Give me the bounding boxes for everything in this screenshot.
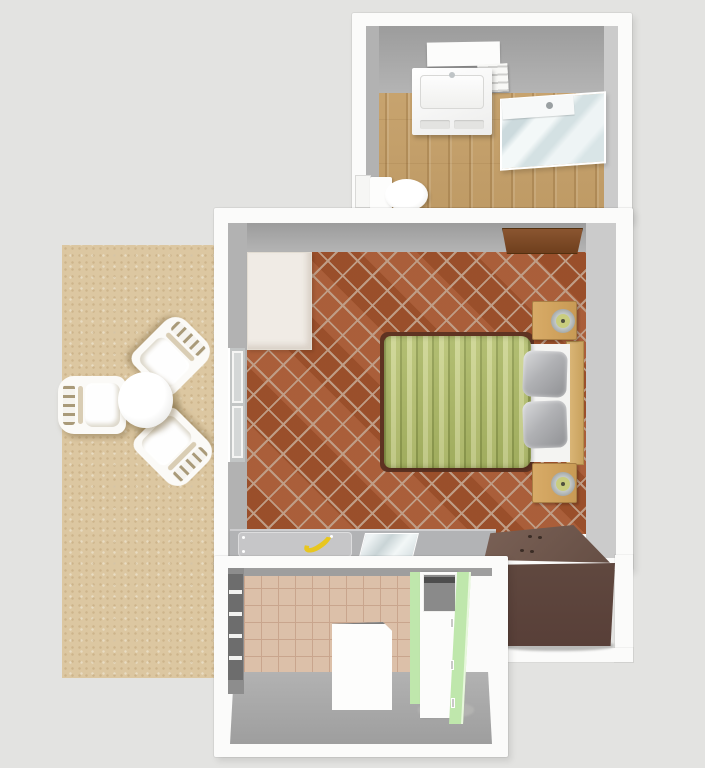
sink-tap — [449, 72, 455, 78]
kitchen-white-table[interactable] — [332, 622, 392, 710]
bed-duvet — [384, 336, 531, 468]
vanity-drawer-right — [454, 120, 484, 129]
window-pane-lower — [232, 406, 243, 458]
desk-knob — [242, 550, 245, 553]
cooktop-unit[interactable] — [423, 574, 456, 612]
floor-plan-scene — [0, 0, 705, 768]
nook-south-wall — [492, 648, 633, 662]
desk-knob — [242, 536, 245, 539]
bathroom-room — [352, 13, 632, 222]
cabinet-handle — [451, 698, 455, 708]
blind-slat — [229, 612, 242, 616]
kitchen-window-blinds[interactable] — [228, 574, 243, 680]
nook-east-wall — [615, 555, 633, 662]
shower-drain — [546, 102, 553, 109]
bedroom-rug[interactable] — [247, 252, 312, 350]
patio-room — [62, 245, 214, 678]
dresser-shadow — [500, 640, 614, 651]
cooktop-bar — [424, 577, 455, 583]
sink-basin — [420, 75, 484, 109]
bedroom-room — [214, 208, 633, 570]
bed-pillow-south — [522, 400, 568, 449]
lamp-bulb — [561, 319, 565, 323]
double-bed[interactable] — [380, 332, 586, 472]
bedroom-entry-door[interactable] — [502, 228, 583, 254]
vanity-drawer-left — [420, 120, 450, 129]
bathroom-mirror-shelf[interactable] — [427, 41, 500, 66]
window-pane-upper — [232, 351, 243, 403]
lamp-bulb — [561, 482, 565, 486]
bed-pillow-north — [522, 350, 568, 398]
glass-pad[interactable] — [359, 533, 419, 557]
cabinet-handle — [450, 618, 454, 628]
bedroom-west-window[interactable] — [228, 348, 245, 462]
shower-cabin[interactable] — [498, 83, 610, 171]
toilet[interactable] — [368, 175, 432, 211]
nightstand-south[interactable] — [532, 463, 577, 503]
bedroom-wall-face-east — [586, 223, 616, 558]
toilet-bowl — [385, 179, 428, 211]
dresser-front — [505, 563, 615, 646]
bathroom-vanity-sink[interactable] — [412, 68, 492, 135]
desk-paper-mat[interactable] — [238, 532, 352, 557]
kitchen-cabinet-column[interactable] — [410, 570, 474, 726]
table-lamp-icon — [551, 472, 575, 496]
chair-gap — [78, 386, 83, 424]
patio-round-table[interactable] — [118, 372, 173, 428]
kitchen-room — [214, 556, 508, 757]
blind-slat — [229, 634, 242, 638]
blind-slat — [229, 656, 242, 660]
nightstand-north[interactable] — [532, 301, 577, 340]
table-lamp-icon — [551, 309, 575, 333]
cabinet-handle — [450, 660, 454, 670]
chair-seat — [85, 383, 120, 427]
patio-chair-west[interactable] — [58, 376, 126, 434]
blind-slat — [229, 590, 242, 594]
chair-back-slats — [63, 385, 75, 425]
